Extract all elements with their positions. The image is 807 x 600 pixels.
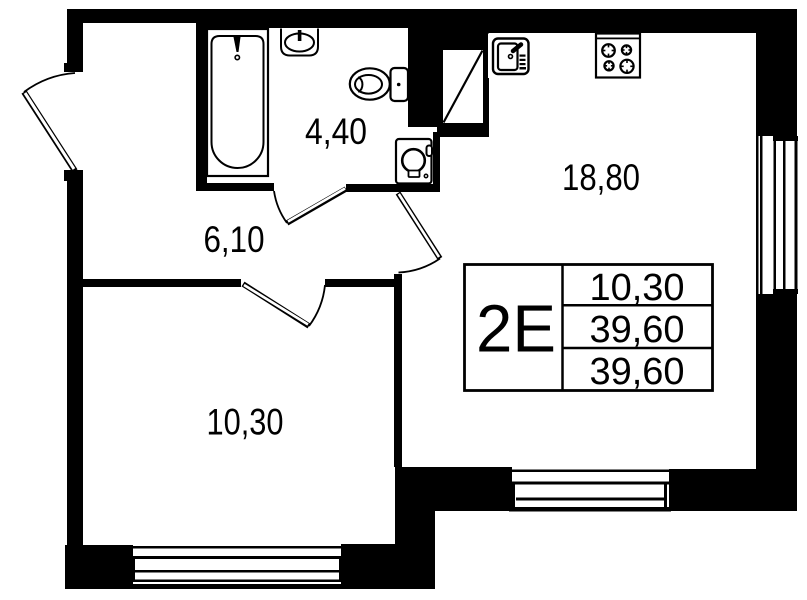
svg-text:10,30: 10,30 bbox=[207, 402, 284, 443]
svg-text:39,60: 39,60 bbox=[589, 309, 684, 351]
svg-text:6,10: 6,10 bbox=[204, 219, 265, 260]
svg-text:4,40: 4,40 bbox=[305, 111, 367, 152]
svg-text:10,30: 10,30 bbox=[589, 267, 684, 309]
svg-text:2E: 2E bbox=[476, 292, 556, 367]
svg-text:39,60: 39,60 bbox=[589, 351, 684, 393]
svg-text:18,80: 18,80 bbox=[562, 157, 640, 198]
